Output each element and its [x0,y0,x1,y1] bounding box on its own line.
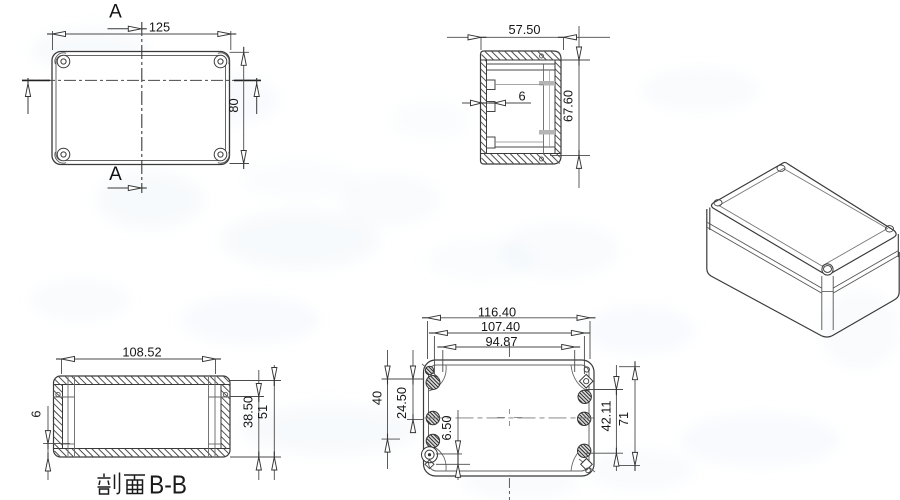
svg-text:107.40: 107.40 [481,319,520,334]
svg-text:51: 51 [255,405,270,419]
svg-text:6: 6 [518,89,525,104]
svg-text:108.52: 108.52 [122,345,161,360]
svg-text:40: 40 [370,391,385,405]
svg-text:116.40: 116.40 [478,304,516,319]
svg-text:A: A [109,2,122,23]
svg-text:57.50: 57.50 [508,22,540,37]
svg-text:42.11: 42.11 [599,400,614,431]
svg-text:A: A [109,164,122,185]
svg-text:71: 71 [616,412,631,426]
svg-text:80: 80 [226,98,241,112]
svg-text:125: 125 [149,19,170,34]
svg-text:67.60: 67.60 [561,90,576,122]
svg-text:24.50: 24.50 [394,387,409,419]
svg-text:94.87: 94.87 [485,334,517,349]
svg-text:B-B: B-B [149,470,187,500]
svg-text:6: 6 [29,410,44,417]
svg-text:6.50: 6.50 [439,416,454,441]
svg-text:38.50: 38.50 [241,396,256,428]
